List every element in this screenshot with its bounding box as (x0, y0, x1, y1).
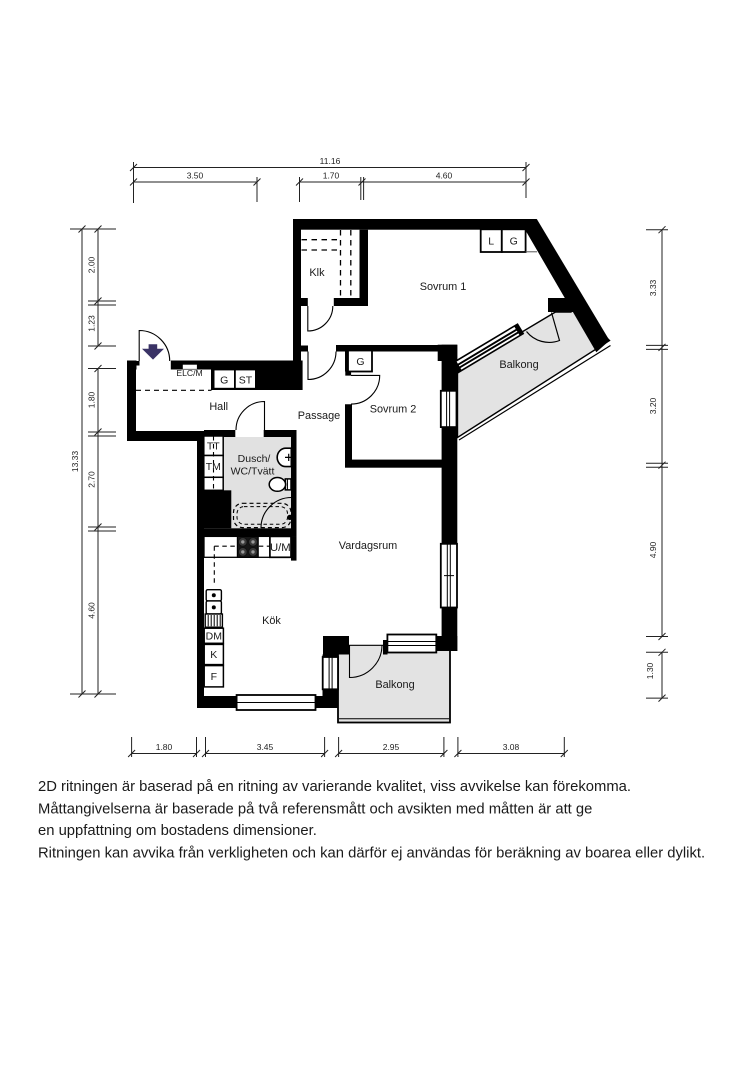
svg-text:1.30: 1.30 (645, 662, 655, 679)
svg-text:ST: ST (239, 375, 253, 387)
svg-text:G: G (220, 375, 228, 387)
svg-text:TM: TM (206, 461, 221, 473)
svg-text:2.70: 2.70 (87, 471, 97, 488)
svg-text:2D ritningen är baserad på en: 2D ritningen är baserad på en ritning av… (38, 779, 631, 795)
svg-text:K: K (210, 649, 217, 661)
svg-text:4.60: 4.60 (87, 602, 97, 619)
svg-text:Balkong: Balkong (375, 679, 414, 691)
svg-text:13.33: 13.33 (70, 451, 80, 473)
svg-text:1.23: 1.23 (87, 315, 97, 332)
svg-text:3.08: 3.08 (503, 742, 520, 752)
svg-text:Sovrum 2: Sovrum 2 (370, 404, 417, 416)
svg-text:Ritningen kan avvika från verk: Ritningen kan avvika från verkligheten o… (38, 846, 705, 862)
svg-text:Passage: Passage (298, 410, 340, 422)
svg-text:3.45: 3.45 (257, 742, 274, 752)
svg-text:Vardagsrum: Vardagsrum (339, 540, 398, 552)
svg-text:2.00: 2.00 (87, 256, 97, 273)
svg-text:Klk: Klk (309, 267, 325, 279)
svg-text:DM: DM (206, 631, 222, 643)
svg-text:U/M: U/M (270, 542, 291, 554)
svg-text:F: F (211, 671, 217, 683)
svg-text:4.90: 4.90 (648, 541, 658, 558)
svg-text:ELC/M: ELC/M (176, 368, 202, 378)
svg-text:3.50: 3.50 (187, 171, 204, 181)
svg-text:Sovrum 1: Sovrum 1 (420, 281, 467, 293)
svg-text:G: G (510, 236, 518, 248)
svg-text:11.16: 11.16 (320, 156, 341, 166)
svg-text:1.80: 1.80 (156, 742, 173, 752)
svg-text:Dusch/: Dusch/ (238, 453, 271, 465)
svg-text:G: G (356, 356, 364, 368)
svg-text:1.70: 1.70 (323, 171, 340, 181)
svg-text:WC/Tvätt: WC/Tvätt (231, 466, 275, 478)
svg-text:Kök: Kök (262, 615, 281, 627)
svg-text:3.20: 3.20 (648, 397, 658, 414)
svg-text:Hall: Hall (209, 401, 228, 413)
svg-text:L: L (488, 236, 494, 248)
svg-text:TT: TT (207, 441, 220, 453)
svg-text:2.95: 2.95 (383, 742, 400, 752)
svg-text:3.33: 3.33 (648, 279, 658, 296)
svg-text:4.60: 4.60 (436, 171, 453, 181)
svg-text:1.80: 1.80 (87, 391, 97, 408)
svg-text:Balkong: Balkong (499, 359, 538, 371)
svg-text:Måttangivelserna är baserade p: Måttangivelserna är baserade på två refe… (38, 802, 592, 818)
svg-text:en uppfattning om bostadens di: en uppfattning om bostadens dimensioner. (38, 823, 317, 839)
